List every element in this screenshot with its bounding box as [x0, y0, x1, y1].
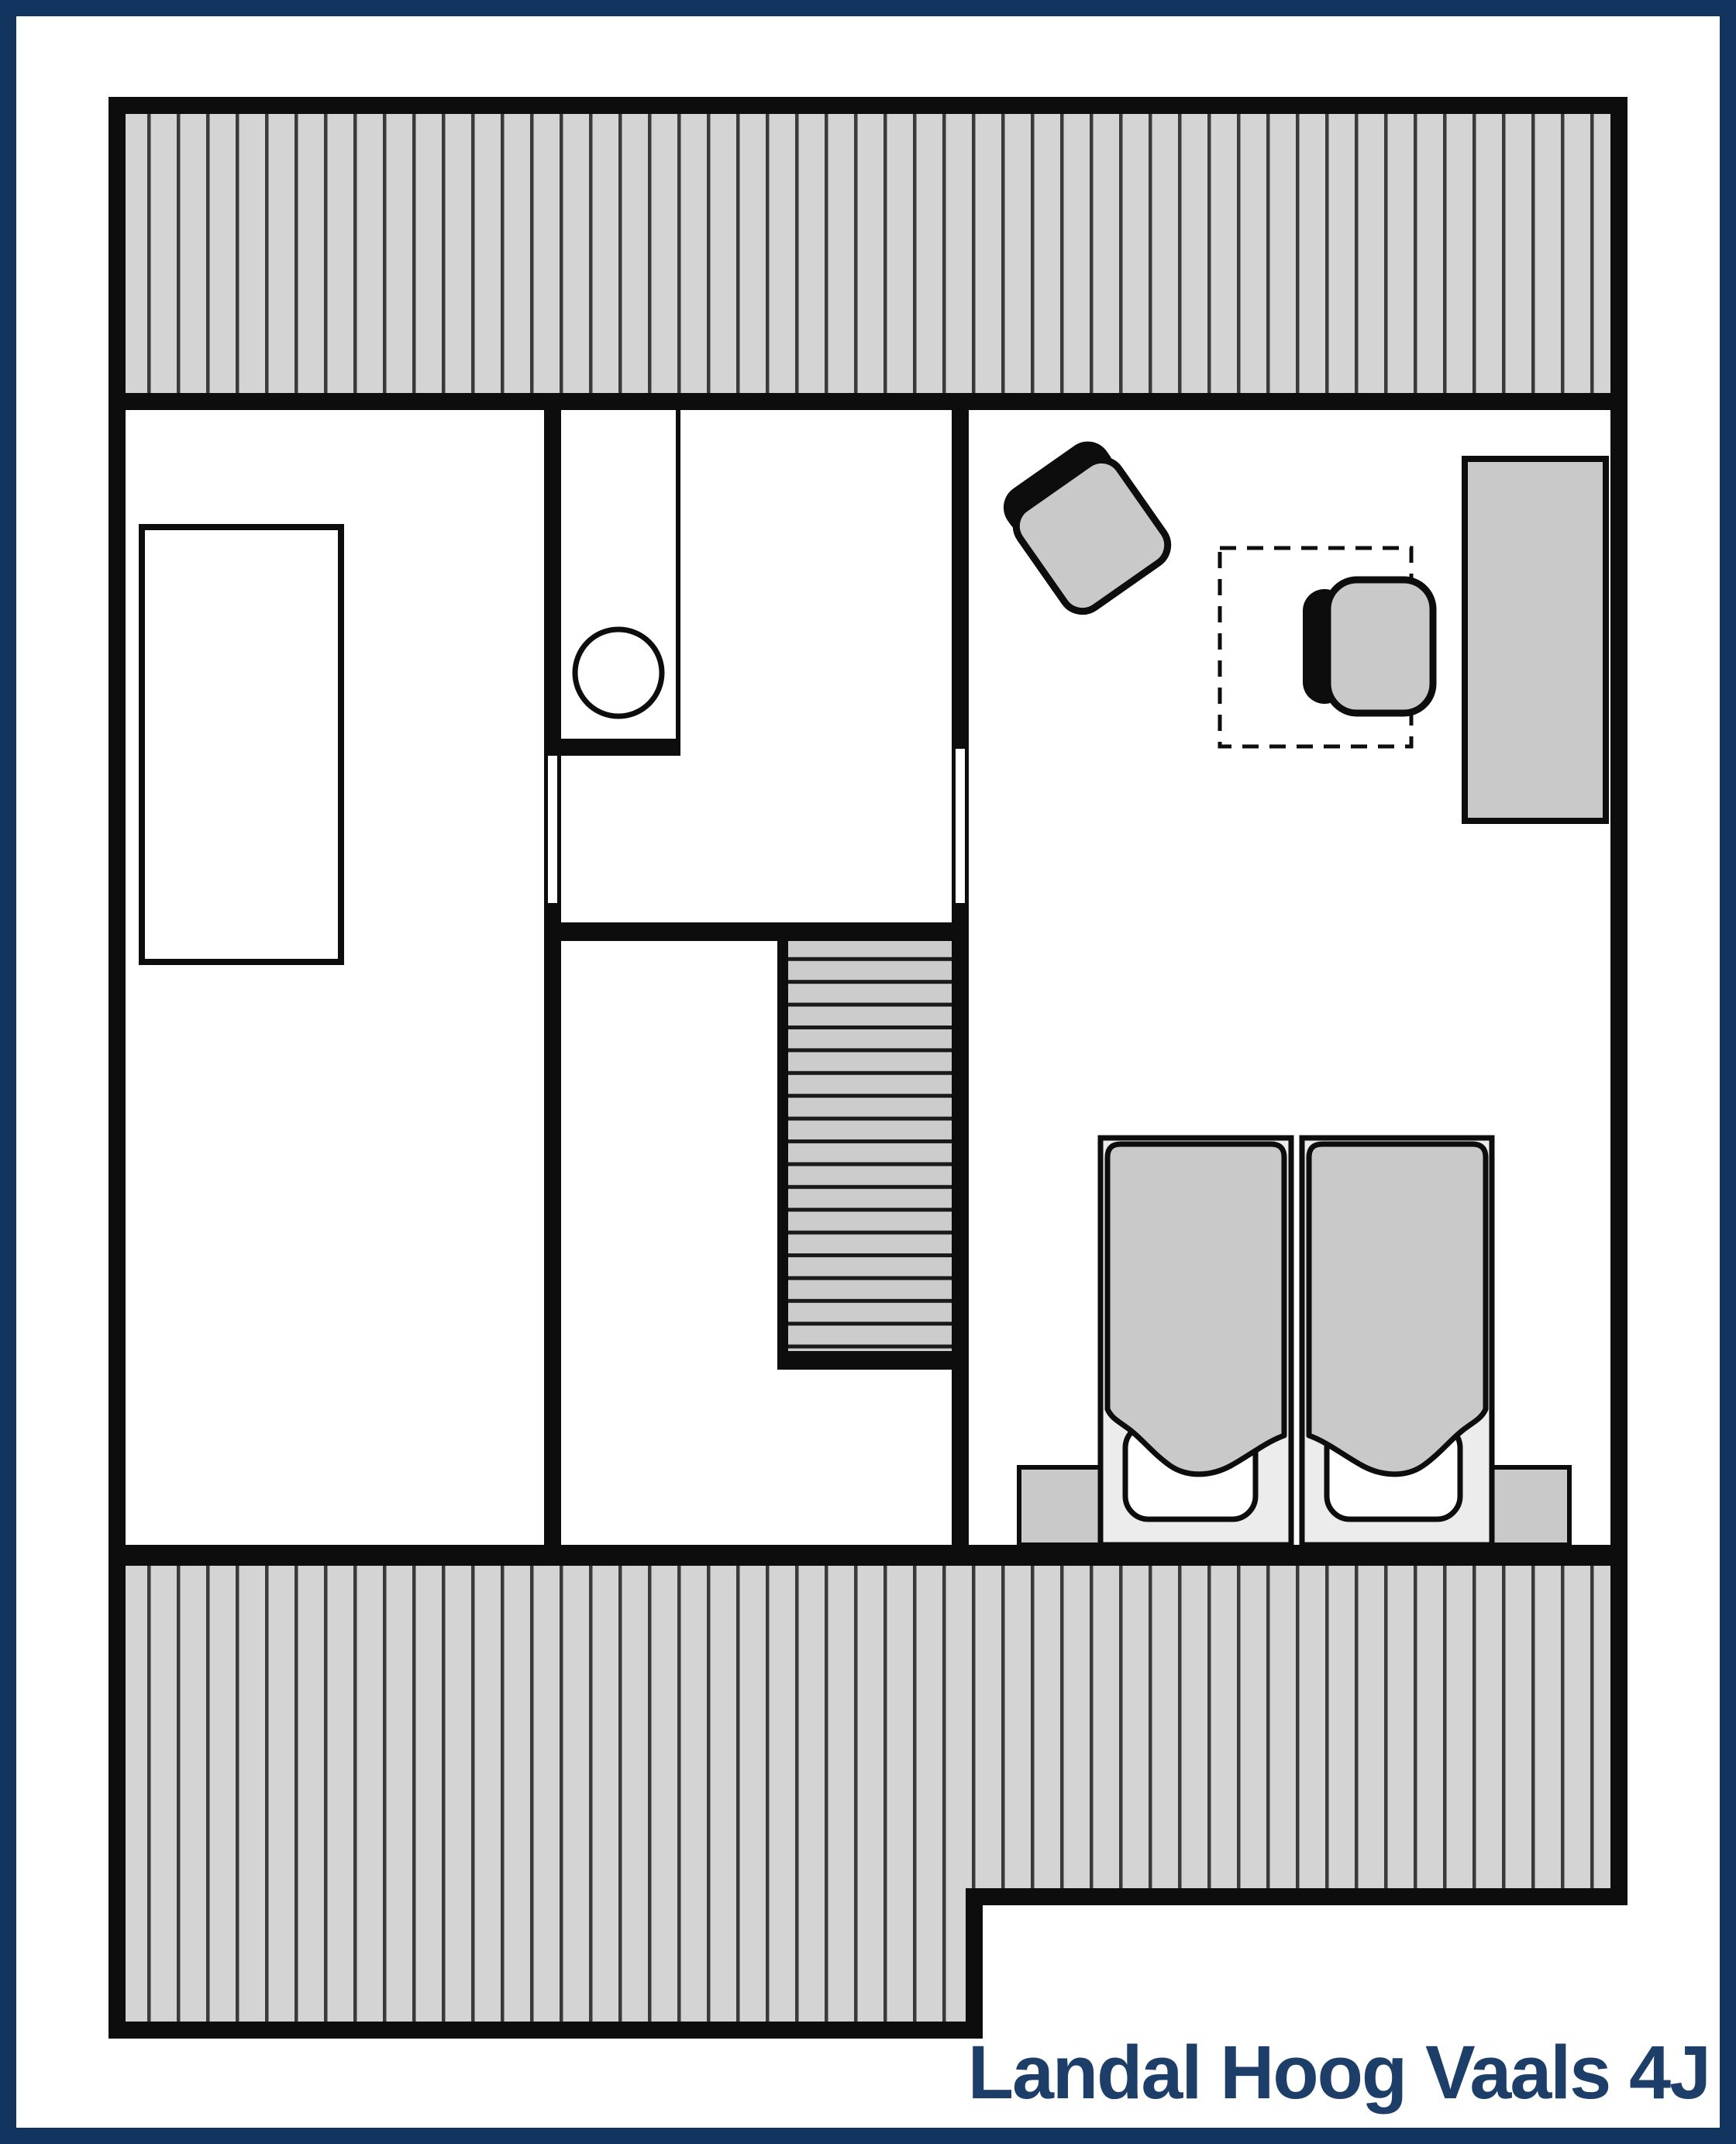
wall-stairs-bottom: [777, 1351, 969, 1370]
wall-bottom-left-section: [108, 2022, 983, 2039]
wall-below-top-hatch: [108, 393, 1627, 410]
bed-outline-left-room: [142, 527, 341, 962]
nightstand-left: [1019, 1467, 1102, 1545]
wall-right-room-upper: [952, 410, 969, 749]
stairs: [788, 941, 952, 1351]
duvet: [1309, 1144, 1486, 1474]
toilet-icon: [575, 629, 662, 716]
floor-plan: [0, 0, 1736, 2144]
wall-bottom-step: [966, 1888, 983, 2039]
wall-rooms-bottom: [108, 1545, 1627, 1566]
duvet: [1107, 1144, 1284, 1474]
wall-right-room-lower: [952, 903, 969, 1545]
wall-wc-right-thin: [676, 410, 680, 739]
wall-top: [108, 97, 1627, 114]
wall-left: [108, 97, 126, 2039]
wall-bottom-right-section: [966, 1888, 1627, 1905]
wall-stairs-left-thin: [777, 941, 788, 1370]
roof-hatch-top: [126, 114, 1610, 393]
plan-title: Landal Hoog Vaals 4J: [968, 2029, 1710, 2116]
armchair-seat: [1328, 580, 1433, 713]
frame-top: [0, 0, 1736, 16]
wall-right: [1610, 97, 1627, 1905]
wardrobe: [1465, 459, 1606, 821]
armchair: [1303, 580, 1433, 713]
bed-left: [1100, 1138, 1291, 1545]
frame-left: [0, 0, 16, 2144]
wall-stairs-top: [561, 922, 969, 941]
wall-wc-bottom: [544, 739, 680, 756]
frame-bottom: [0, 2128, 1736, 2144]
frame-right: [1720, 0, 1736, 2144]
bed-right: [1302, 1138, 1492, 1545]
wall-left-room-upper: [544, 410, 561, 749]
nightstand-right: [1492, 1467, 1569, 1545]
wall-left-room-lower: [544, 903, 561, 1545]
